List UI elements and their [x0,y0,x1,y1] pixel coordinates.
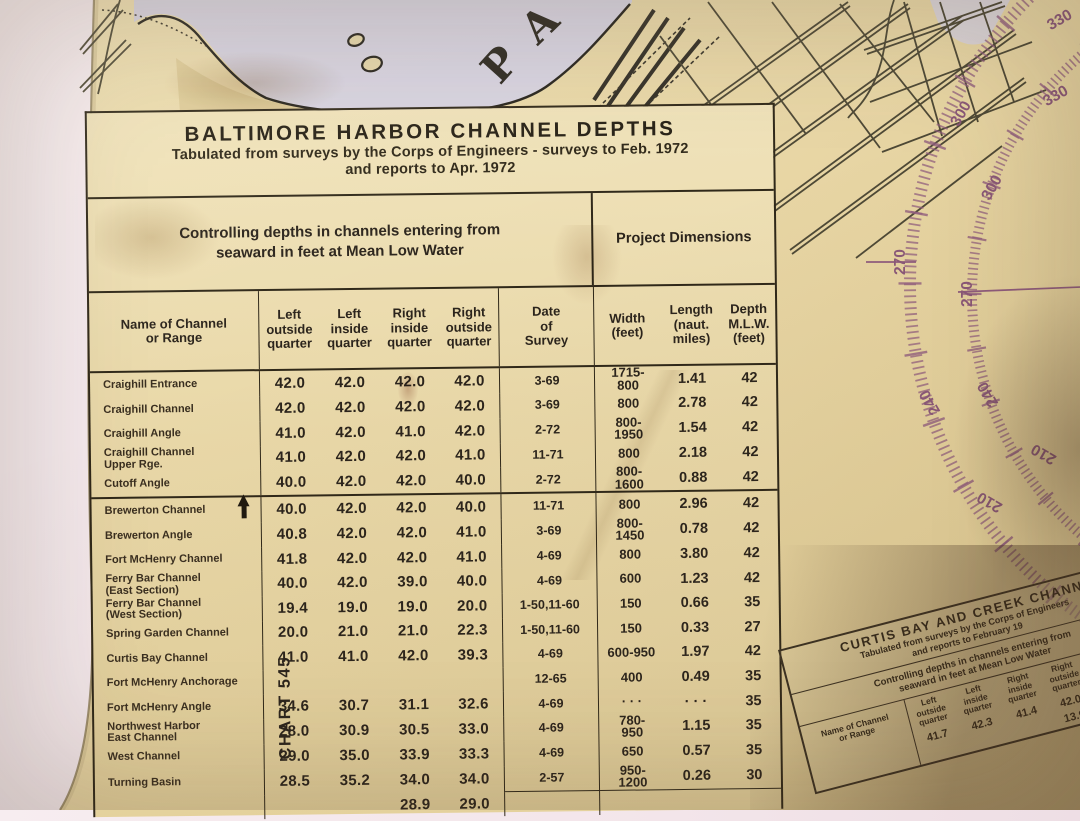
channel-name: West Channel [94,744,264,771]
channel-name: Craighill Angle [91,421,261,448]
right-outside-quarter-value: 41.0 [442,544,502,569]
survey-date-value: 3-69 [500,392,595,418]
width-value: 800 [597,542,663,567]
width-value: · · · [599,690,665,715]
left-inside-quarter-value: 35.0 [324,743,384,768]
survey-date-value: 12-65 [504,666,599,692]
survey-date-value: 4-69 [504,740,599,766]
right-outside-quarter-value: 33.3 [444,741,504,766]
right-outside-quarter-value: 32.6 [444,692,504,717]
width-value: 400 [599,665,665,690]
depth-value: 30 [728,762,781,789]
table-body: Craighill Entrance 42.0 42.0 42.0 42.0 3… [90,365,781,821]
channel-name: Spring Garden Channel [93,621,263,648]
left-outside-quarter-value: 41.0 [261,420,321,446]
length-value [666,789,728,814]
photo-of-nautical-chart: { "main_table": { "title": "BALTIMORE HA… [0,0,1080,810]
left-inside-quarter-value: 42.0 [322,520,382,546]
width-value: 800- 1600 [596,465,662,491]
depth-value: 42 [726,639,779,664]
survey-date-value: 1-50,11-60 [503,617,598,643]
width-value: 800 [596,492,662,517]
length-value: 0.26 [666,763,728,790]
left-inside-quarter-value [324,668,384,693]
depth-value: 27 [726,614,779,639]
right-outside-quarter-value: 42.0 [440,393,500,418]
width-value: 150 [598,591,664,616]
survey-date-value: 11-71 [501,493,596,519]
right-inside-quarter-value: 30.5 [384,717,444,743]
depth-value: 35 [726,590,779,615]
channel-name: Northwest Harbor East Channel [94,719,264,746]
right-outside-quarter-value: 41.0 [442,519,502,545]
right-outside-quarter-value: 42.0 [440,418,500,444]
right-inside-quarter-value: 42.0 [383,643,443,668]
col-header-right-outside: Right outside quarter [439,288,500,367]
left-outside-quarter-value: 40.8 [262,521,322,547]
length-value: 0.88 [662,465,724,491]
table-column-headers: Name of Channel or Range Left outside qu… [89,285,776,373]
depth-value: 42 [724,464,777,490]
depth-value: 42 [723,390,776,415]
table-title-block: BALTIMORE HARBOR CHANNEL DEPTHS Tabulate… [87,105,774,199]
right-inside-quarter-value: 21.0 [383,618,443,643]
channel-name: Ferry Bar Channel (West Section) [93,596,263,623]
depth-value: 35 [727,713,780,739]
right-inside-quarter-value: 34.0 [385,766,445,793]
width-value: 950- 1200 [600,764,666,791]
right-inside-quarter-value: 42.0 [380,394,440,419]
right-inside-quarter-value [384,668,444,693]
depth-value: 35 [727,688,780,713]
col-header-depth: Depth M.L.W. (feet) [722,285,776,364]
survey-date-value: 3-69 [502,518,597,544]
right-inside-quarter-value: 19.0 [383,594,443,619]
col-header-right-inside: Right inside quarter [379,289,440,368]
project-dimensions-header: Project Dimensions [591,191,775,285]
compass-label: 270 [892,249,909,275]
depth-value: 42 [724,439,777,464]
right-inside-quarter-value: 42.0 [381,468,441,494]
channel-name: Fort McHenry Angle [94,694,264,721]
width-value: 780- 950 [599,714,665,740]
channel-name: Fort McHenry Channel [92,547,262,574]
right-inside-quarter-value: 28.9 [385,792,445,817]
col-header-date: Date of Survey [499,287,595,366]
length-value: 3.80 [663,541,725,566]
depth-value: 42 [725,516,778,542]
right-inside-quarter-value: 42.0 [382,545,442,570]
channel-name: Cutoff Angle [91,470,261,497]
left-outside-quarter-value: 40.0 [261,470,321,496]
length-value: 0.33 [664,615,726,640]
survey-date-value: 2-72 [500,417,595,443]
depth-value: 42 [725,541,778,566]
length-value: 2.78 [661,390,723,415]
right-inside-quarter-value: 39.0 [382,569,442,594]
channel-name: Curtis Bay Channel [93,645,263,672]
channel-name [95,795,265,821]
length-value: 1.23 [663,566,725,591]
width-value: 800 [596,441,662,466]
width-value: 800- 1450 [597,517,663,543]
left-inside-quarter-value: 42.0 [321,444,381,469]
channel-name: Brewerton Channel [91,497,261,524]
channel-name: Turning Basin [95,769,265,797]
channel-name: Craighill Channel [90,396,260,423]
right-inside-quarter-value: 42.0 [380,369,440,395]
controlling-depths-header: Controlling depths in channels entering … [88,193,592,291]
survey-date-value [505,791,600,817]
survey-date-value: 3-69 [500,367,595,393]
right-inside-quarter-value: 42.0 [382,520,442,546]
compass-label: 270 [959,281,976,307]
depth-value: 42 [723,365,776,391]
left-inside-quarter-value: 42.0 [322,545,382,570]
length-value: 1.41 [661,365,723,391]
length-value: 0.66 [664,590,726,615]
channel-name: Fort McHenry Anchorage [94,670,264,697]
left-outside-quarter-value: 40.0 [261,497,321,522]
right-outside-quarter-value: 39.3 [443,642,503,667]
left-inside-quarter-value: 35.2 [325,767,385,794]
length-value: 0.49 [665,664,727,689]
col-header-name: Name of Channel or Range [89,291,260,371]
depth-value: 35 [727,738,780,763]
col-header-width: Width (feet) [594,286,661,365]
left-inside-quarter-value: 42.0 [320,370,380,396]
depth-value: 42 [723,414,776,440]
length-value: · · · [665,689,727,714]
width-value: 150 [598,616,664,641]
right-inside-quarter-value: 33.9 [384,742,444,767]
right-outside-quarter-value: 42.0 [440,368,500,394]
right-outside-quarter-value: 22.3 [443,618,503,643]
chart-number-label: CHART 545 [274,628,296,788]
left-inside-quarter-value: 42.0 [322,570,382,595]
survey-date-value: 4-69 [502,567,597,593]
survey-date-value: 11-71 [501,442,596,468]
channel-name: Craighill Entrance [90,371,260,398]
left-inside-quarter-value: 42.0 [321,496,381,521]
width-value: 800- 1950 [595,416,661,442]
right-inside-quarter-value: 41.0 [380,419,440,445]
left-inside-quarter-value: 30.9 [324,718,384,744]
survey-date-value: 4-69 [502,543,597,569]
right-outside-quarter-value: 33.0 [444,716,504,742]
length-value: 1.54 [661,415,723,441]
length-value: 1.97 [664,640,726,665]
survey-date-value: 4-69 [504,690,599,716]
width-value: 650 [599,739,665,764]
left-inside-quarter-value: 30.7 [324,693,384,718]
width-value: 600-950 [598,640,664,665]
length-value: 0.57 [665,738,727,763]
col-header-length: Length (naut. miles) [660,285,723,364]
baltimore-harbor-depths-table: BALTIMORE HARBOR CHANNEL DEPTHS Tabulate… [85,103,784,817]
left-outside-quarter-value: 41.0 [261,445,321,470]
length-value: 2.18 [662,440,724,465]
right-outside-quarter-value: 29.0 [445,792,505,817]
left-inside-quarter-value: 41.0 [323,644,383,669]
left-outside-quarter-value: 19.4 [263,595,323,620]
width-value: 600 [597,567,663,592]
right-outside-quarter-value: 41.0 [441,443,501,468]
survey-date-value: 1-50,11-60 [503,592,598,618]
left-inside-quarter-value: 21.0 [323,619,383,644]
col-header-left-inside: Left inside quarter [319,290,380,369]
depth-value: 42 [724,491,777,516]
left-inside-quarter-value: 19.0 [323,595,383,620]
left-outside-quarter-value: 41.8 [262,546,322,571]
left-outside-quarter-value [265,794,325,819]
channel-name: Ferry Bar Channel (East Section) [92,571,262,598]
right-inside-quarter-value: 42.0 [381,444,441,469]
left-outside-quarter-value: 42.0 [260,370,320,396]
col-header-left-outside: Left outside quarter [259,290,320,369]
right-outside-quarter-value: 34.0 [445,766,505,793]
left-inside-quarter-value: 42.0 [320,395,380,420]
right-outside-quarter-value: 40.0 [441,494,501,519]
right-outside-quarter-value: 20.0 [443,593,503,618]
left-inside-quarter-value [325,793,385,818]
right-outside-quarter-value: 40.0 [441,467,501,493]
channel-name: Brewerton Angle [92,522,262,549]
right-outside-quarter-value [444,667,504,692]
length-value: 0.78 [663,516,725,542]
left-inside-quarter-value: 42.0 [321,469,381,495]
channel-name: Craighill Channel Upper Rge. [91,446,261,473]
table-group-header: Controlling depths in channels entering … [88,191,775,293]
survey-date-value: 2-57 [505,765,600,792]
left-outside-quarter-value: 40.0 [262,571,322,596]
width-value [600,790,666,815]
right-outside-quarter-value: 40.0 [442,569,502,594]
right-inside-quarter-value: 31.1 [384,692,444,717]
width-value: 1715- 800 [595,366,661,392]
left-outside-quarter-value: 42.0 [260,395,320,420]
survey-date-value: 2-72 [501,466,596,492]
survey-date-value: 4-69 [503,641,598,667]
length-value: 1.15 [665,713,727,739]
length-value: 2.96 [662,492,724,517]
north-arrow-icon [237,494,250,520]
depth-value: 42 [725,565,778,590]
left-inside-quarter-value: 42.0 [321,419,381,445]
depth-value: 35 [727,664,780,689]
right-inside-quarter-value: 42.0 [381,495,441,520]
survey-date-value: 4-69 [504,715,599,741]
width-value: 800 [595,391,661,416]
